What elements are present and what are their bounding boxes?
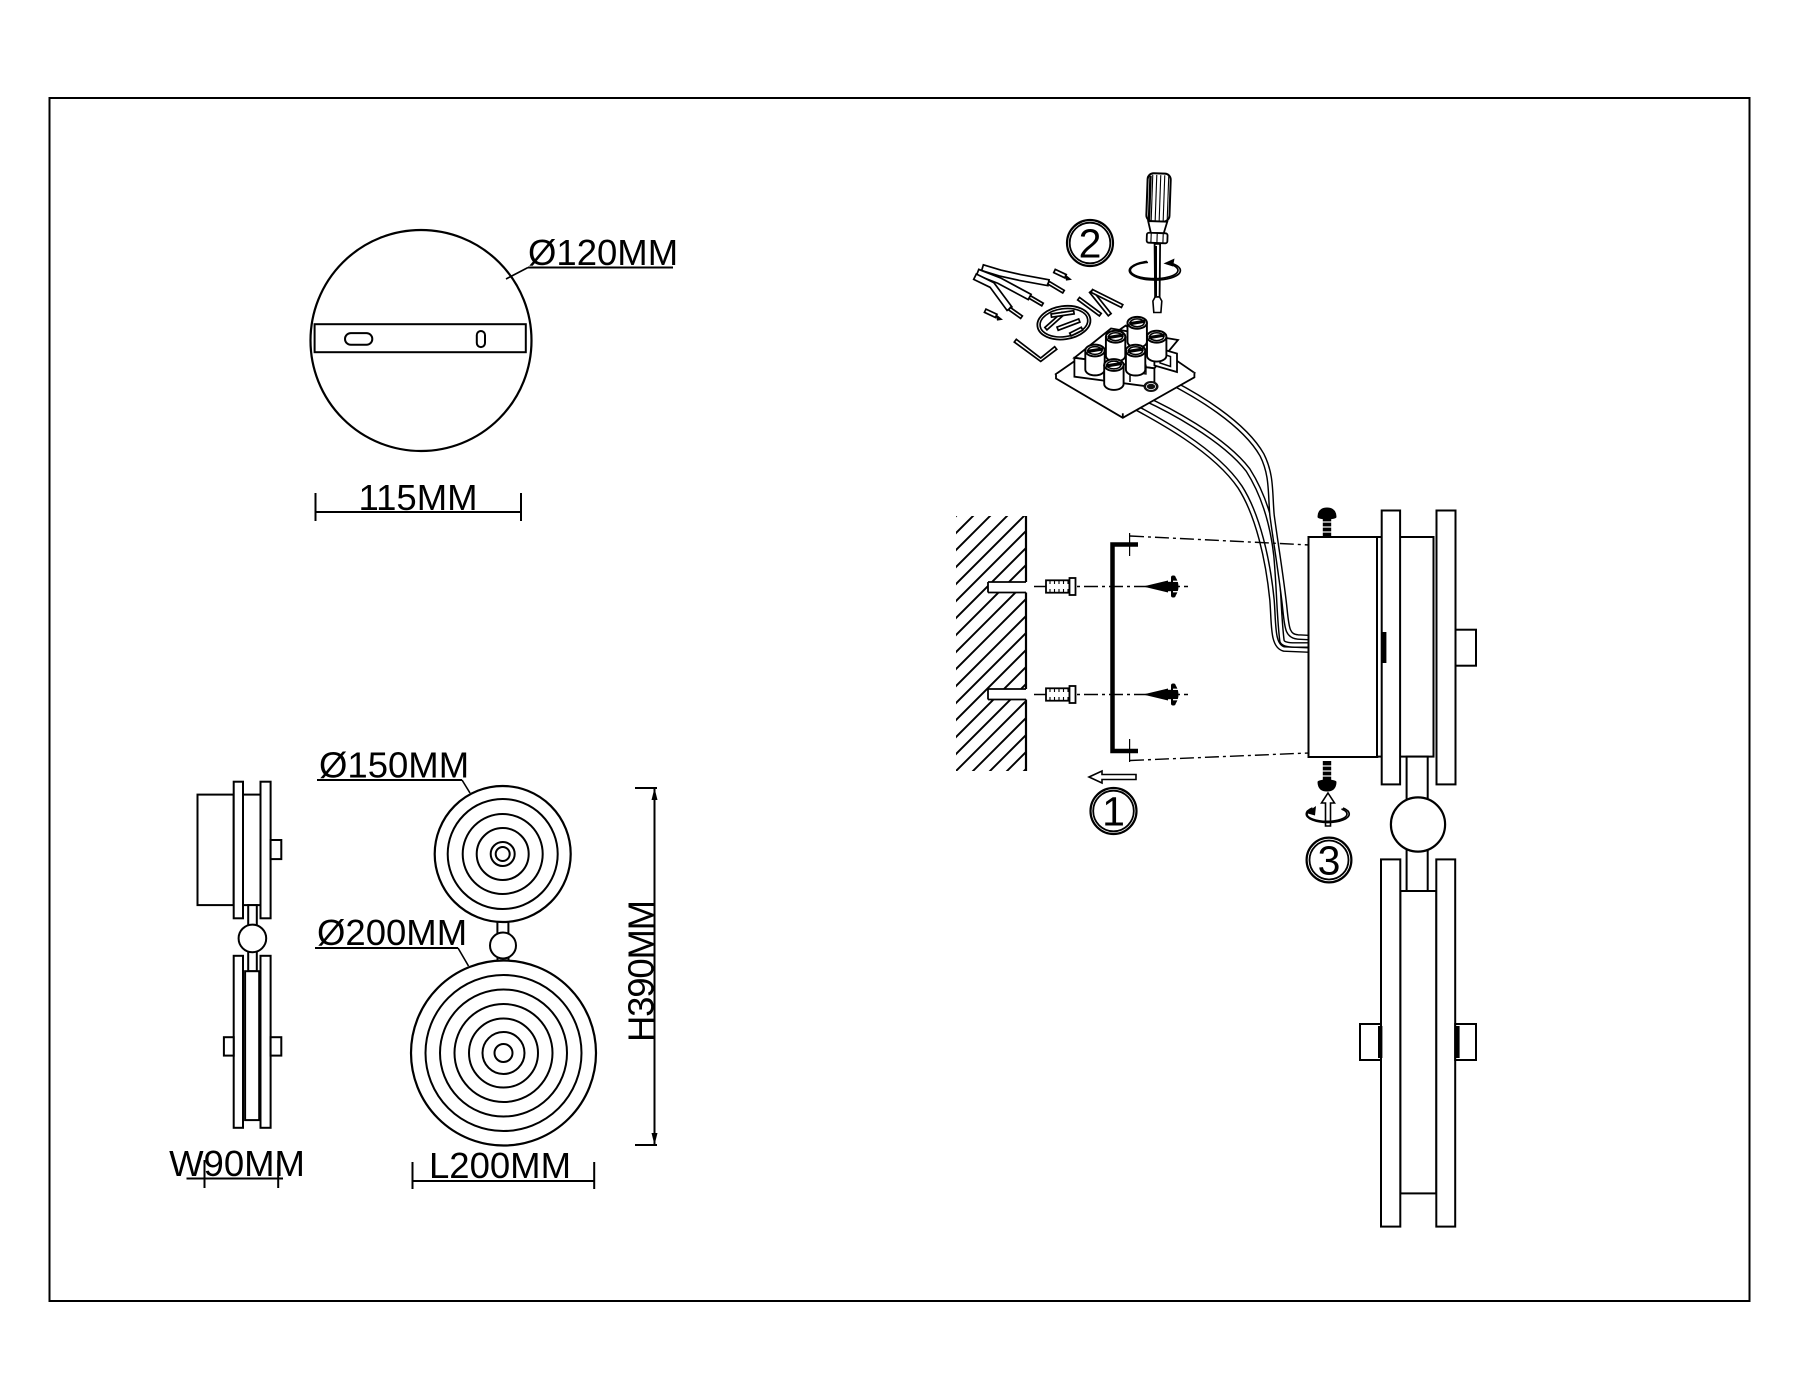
svg-text:Ø200MM: Ø200MM — [317, 912, 467, 953]
svg-text:1: 1 — [1102, 789, 1125, 835]
svg-text:L200MM: L200MM — [429, 1145, 571, 1186]
svg-text:115MM: 115MM — [359, 477, 478, 518]
svg-text:2: 2 — [1079, 221, 1102, 267]
svg-text:H390MM: H390MM — [621, 901, 662, 1042]
svg-text:3: 3 — [1318, 838, 1341, 884]
